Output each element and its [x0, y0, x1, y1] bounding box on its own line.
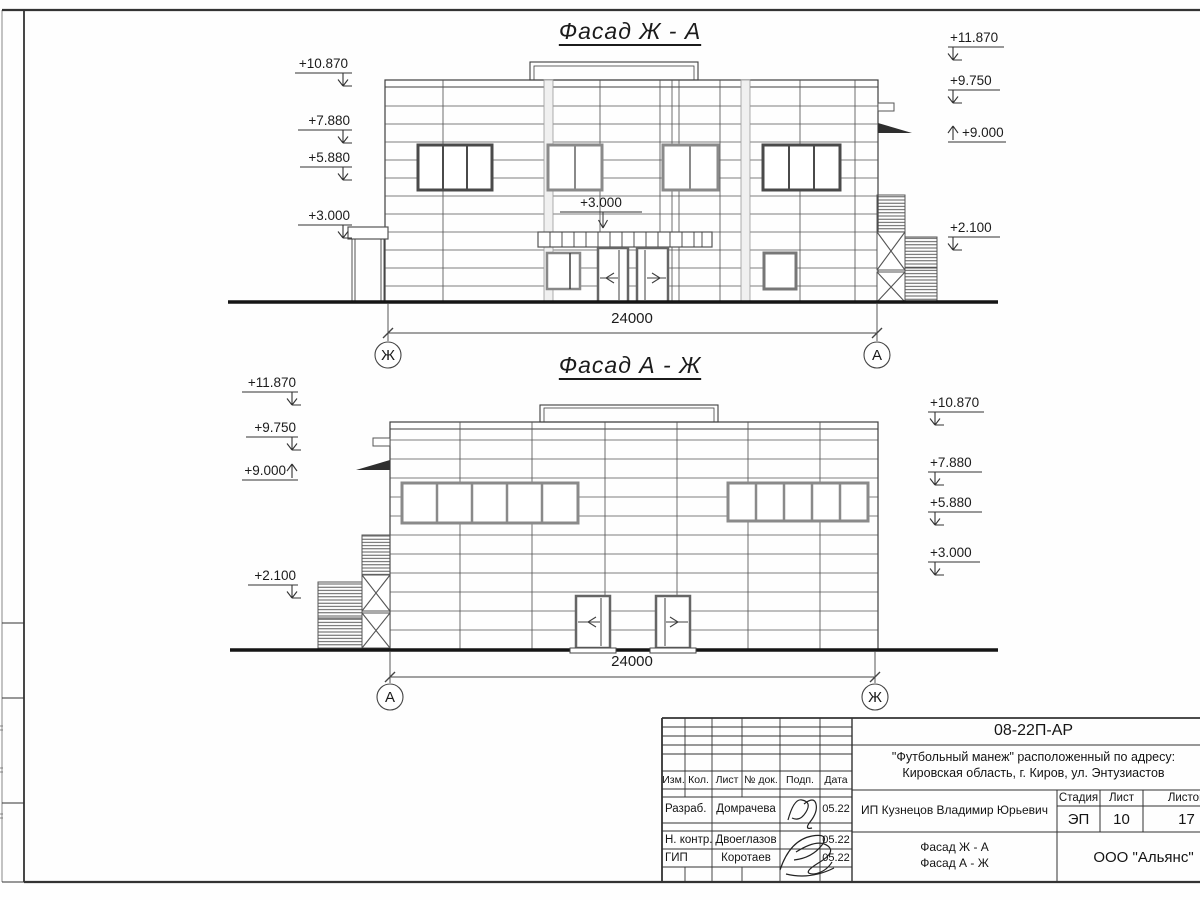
- facade-drawing-canvas: [0, 0, 1200, 900]
- titleblock-col-list: Лист: [712, 774, 742, 786]
- titleblock-stage-label: Стадия: [1057, 792, 1100, 805]
- facade1-axis-right-label: А: [863, 347, 891, 364]
- elevation-mark-f1-right-3: +2.100: [950, 220, 1002, 236]
- titleblock-col-izm: Изм.: [662, 774, 685, 786]
- elevation-mark-f2-right-0: +10.870: [930, 395, 986, 411]
- titleblock-name-nkontr: Двоеглазов: [712, 834, 780, 847]
- titleblock-project-line1: "Футбольный манеж" расположенный по адре…: [852, 750, 1200, 764]
- facade1-dimension-label: 24000: [558, 310, 706, 327]
- elevation-mark-f2-right-2: +5.880: [930, 495, 982, 511]
- titleblock-col-kol: Кол.: [685, 774, 712, 786]
- facade2-elevation-marks: [242, 392, 984, 598]
- elevation-mark-f1-right-0: +11.870: [950, 30, 1010, 46]
- titleblock-name-gip: Коротаев: [712, 852, 780, 865]
- titleblock-list-label: Лист: [1100, 792, 1143, 805]
- facade1-wall-tab: [878, 103, 894, 111]
- facade1-windows: [418, 145, 840, 190]
- elevation-mark-f2-left-2: +9.000: [230, 463, 286, 479]
- titleblock-organization: ООО "Альянс": [1057, 849, 1200, 866]
- facade2-drawing: [318, 405, 878, 650]
- titleblock-listov-label: Листов: [1143, 792, 1200, 805]
- facade2-axis-right-label: Ж: [861, 689, 889, 706]
- elevation-mark-f2-right-1: +7.880: [930, 455, 982, 471]
- titleblock-sheets-total: 17: [1143, 811, 1200, 828]
- titleblock-sheet-title-line2: Фасад А - Ж: [852, 857, 1057, 871]
- elevation-mark-f1-left-1: +7.880: [292, 113, 350, 129]
- titleblock-role-razrab: Разраб.: [665, 803, 713, 816]
- facade1-lower-window: [764, 253, 796, 289]
- facade2-axis-left-label: А: [376, 689, 404, 706]
- facade1-entrance-canopy: [538, 232, 712, 247]
- facade2-doors: [576, 596, 690, 648]
- titleblock-name-razrab: Домрачева: [712, 803, 780, 816]
- titleblock-date-nkontr: 05.22: [820, 834, 852, 847]
- titleblock-role-nkontr: Н. контр.: [665, 834, 715, 847]
- titleblock-sheet-number: 10: [1100, 811, 1143, 828]
- facade1-axis-left-label: Ж: [374, 347, 402, 364]
- facade2-exterior-stairs: [318, 535, 390, 650]
- facade2-roof-raise: [540, 405, 718, 422]
- elevation-mark-f2-left-0: +11.870: [238, 375, 296, 391]
- facade2-title: Фасад А - Ж: [455, 352, 805, 378]
- titleblock-date-razrab: 05.22: [820, 803, 852, 816]
- titleblock-doc-code: 08-22П-АР: [852, 722, 1200, 740]
- facade1-exterior-stairs: [877, 195, 937, 302]
- titleblock-col-data: Дата: [820, 774, 852, 786]
- elevation-mark-f1-right-2: +9.000: [962, 125, 1018, 141]
- elevation-mark-f1-internal: +3.000: [559, 195, 643, 211]
- signature-razrab: [788, 800, 816, 829]
- facade2-panel-joints: [460, 422, 820, 650]
- facade2-dimension-label: 24000: [558, 653, 706, 670]
- elevation-mark-f2-right-3: +3.000: [930, 545, 980, 561]
- titleblock-sheet-title-line1: Фасад Ж - А: [852, 841, 1057, 855]
- facade1-door-right: [637, 248, 668, 302]
- facade1-entrance: [547, 248, 796, 302]
- facade2-siding-lines: [390, 440, 878, 630]
- facade1-canopy-triangle: [878, 123, 912, 133]
- elevation-mark-f2-left-3: +2.100: [240, 568, 296, 584]
- titleblock-date-gip: 05.22: [820, 852, 852, 865]
- facade1-title: Фасад Ж - А: [455, 18, 805, 44]
- titleblock-stage-value: ЭП: [1057, 811, 1100, 828]
- facade2-windows: [402, 483, 868, 523]
- titleblock-col-podp: Подп.: [780, 774, 820, 786]
- facade2-wall-tab: [373, 438, 390, 446]
- elevation-mark-f1-left-0: +10.870: [290, 56, 348, 72]
- titleblock-col-doc: № док.: [742, 774, 780, 786]
- elevation-mark-f1-right-1: +9.750: [950, 73, 1006, 89]
- titleblock-client: ИП Кузнецов Владимир Юрьевич: [852, 804, 1057, 818]
- facade2-canopy-triangle: [356, 460, 390, 470]
- facade1-left-porch: [348, 227, 388, 302]
- facade1-roof-raise: [530, 62, 698, 80]
- titleblock-project-line2: Кировская область, г. Киров, ул. Энтузиа…: [852, 766, 1200, 780]
- elevation-mark-f2-left-1: +9.750: [240, 420, 296, 436]
- facade1-pilaster: [741, 80, 750, 302]
- drawing-sheet: Фасад Ж - А Фасад А - Ж +10.870 +7.880 +…: [0, 0, 1200, 900]
- elevation-mark-f1-left-2: +5.880: [294, 150, 350, 166]
- facade1-door-left: [598, 248, 628, 302]
- facade1-drawing: [348, 62, 937, 302]
- titleblock-role-gip: ГИП: [665, 852, 713, 865]
- elevation-mark-f1-left-3: +3.000: [294, 208, 350, 224]
